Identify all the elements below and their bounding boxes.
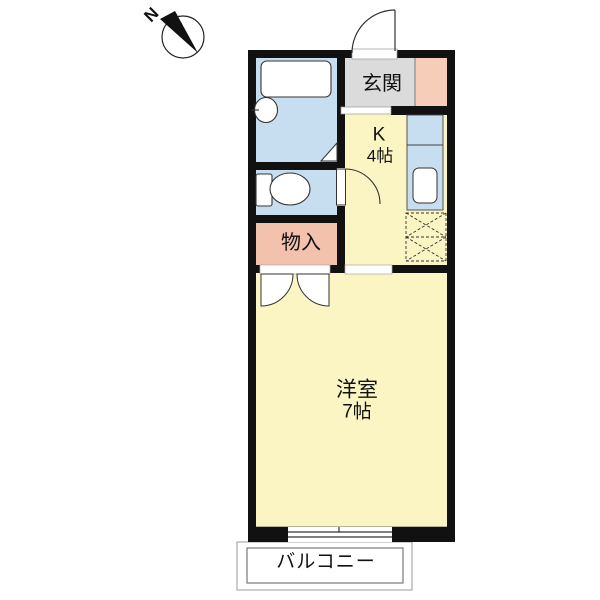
- balcony-label: バルコニー: [276, 553, 376, 574]
- toilet-fixture: [256, 173, 310, 206]
- western-room-size-label: 7帖: [342, 403, 372, 424]
- toilet-bowl-icon: [270, 173, 310, 205]
- north-label: N: [140, 4, 162, 26]
- shoe-cabinet: [415, 54, 451, 107]
- wall-toilet-storage: [248, 215, 345, 223]
- floor-plan-page: N 玄関 K 4帖 物入 洋室 7帖 バルコニー: [0, 0, 600, 600]
- kitchen-sink-icon: [413, 168, 437, 203]
- kitchen-counter: [407, 115, 443, 210]
- kitchen-size-label: 4帖: [367, 148, 393, 167]
- western-room-label: 洋室: [336, 378, 378, 401]
- wall-right: [447, 50, 455, 542]
- entrance-step: [341, 107, 391, 114]
- entrance-door-arc: [352, 10, 395, 53]
- toilet-door-leaf: [337, 169, 346, 205]
- bathtub-icon: [261, 61, 331, 97]
- kitchen-label: K: [373, 126, 386, 147]
- wall-entrance-stub: [391, 106, 451, 115]
- storage-label: 物入: [281, 232, 321, 254]
- compass: N: [140, 4, 204, 58]
- wall-left: [248, 50, 256, 542]
- entrance-threshold: [352, 49, 397, 59]
- wall-bath-toilet: [248, 162, 345, 170]
- floor-plan-drawing: N: [0, 0, 600, 600]
- balcony-window-opening: [288, 527, 392, 542]
- entrance-door-icon: [352, 10, 395, 53]
- entrance-label: 玄関: [362, 73, 402, 95]
- kitchen-room-opening: [345, 265, 392, 274]
- storage-door-opening: [260, 265, 330, 274]
